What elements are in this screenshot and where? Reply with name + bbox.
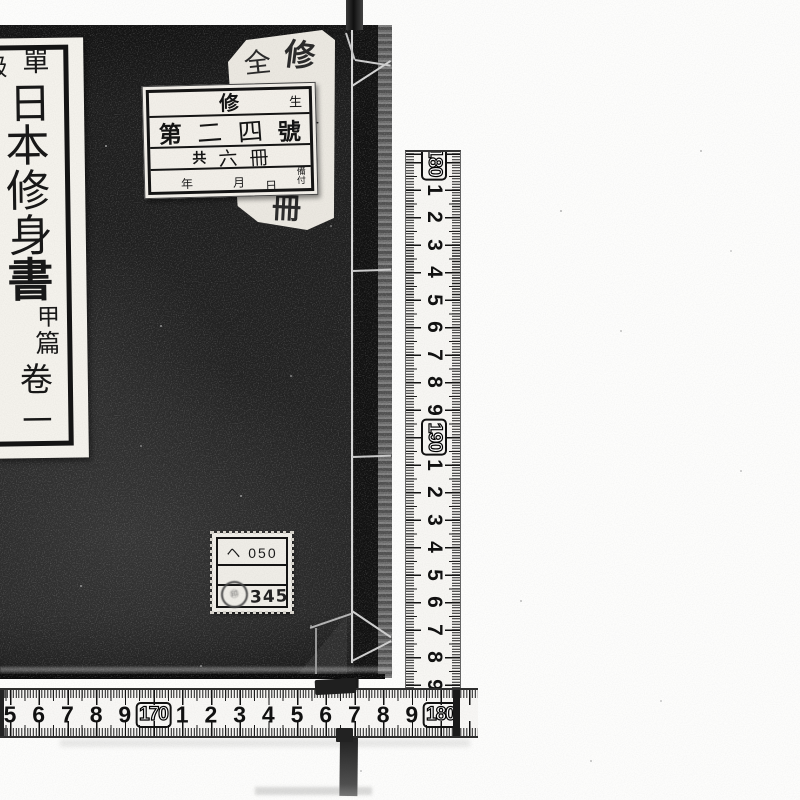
ruler-number: 2 bbox=[204, 702, 217, 729]
horizontal-ruler-numbers: 56789170123456789180 bbox=[0, 690, 478, 736]
ruler-number: 7 bbox=[422, 349, 446, 361]
register-no-prefix: 第 bbox=[158, 115, 182, 150]
register-subject: 修 bbox=[219, 91, 240, 115]
edition-char: 篇 bbox=[35, 331, 60, 356]
ruler-number: 8 bbox=[422, 376, 446, 388]
register-label-frame: 修 生 第 二 四 號 共 六 冊 年 月 日 備 付 bbox=[146, 86, 315, 195]
volumes-count: 六 bbox=[218, 143, 239, 171]
title-char: 本 bbox=[5, 125, 50, 170]
title-char: 級 bbox=[0, 55, 8, 79]
cord-over-ruler-top bbox=[315, 678, 357, 695]
ruler-number: 9 bbox=[118, 702, 131, 729]
ruler-number: 190 bbox=[421, 419, 447, 456]
binding-thread-vertical bbox=[351, 30, 353, 663]
ruler-number: 6 bbox=[422, 321, 446, 333]
cord-over-ruler-bottom bbox=[336, 728, 353, 742]
ruler-number: 8 bbox=[422, 651, 446, 663]
ruler-number: 5 bbox=[422, 294, 446, 306]
archival-scan-book-cover: 級 單 日 本 修 身 書 甲 篇 卷 一 全 修 六 冊 修 生 第 二 四 … bbox=[0, 0, 800, 800]
ruler-number: 3 bbox=[422, 239, 446, 251]
ruler-number: 7 bbox=[348, 702, 361, 729]
ruler-number: 1 bbox=[422, 459, 446, 471]
scan-edge-sliver bbox=[0, 690, 4, 736]
handwritten-char: 全 bbox=[243, 49, 273, 79]
book-spine bbox=[354, 25, 378, 678]
title-char: 修 bbox=[6, 170, 51, 215]
call-label-frame: ヘ 050 ㊞ 345 bbox=[216, 537, 288, 608]
binding-cord-top bbox=[346, 0, 363, 30]
register-grade: 生 bbox=[289, 91, 302, 110]
ruler-number: 5 bbox=[4, 702, 17, 729]
volume-char: 一 bbox=[22, 407, 52, 437]
ruler-shadow bbox=[60, 739, 470, 747]
book-page-edges bbox=[378, 25, 392, 678]
ruler-number: 3 bbox=[422, 514, 446, 526]
handwritten-char: 修 bbox=[282, 39, 317, 74]
cover-bottom-scuff bbox=[0, 667, 392, 672]
volumes-suffix: 冊 bbox=[249, 142, 270, 170]
ruler-number: 6 bbox=[319, 702, 332, 729]
ruler-number: 1 bbox=[422, 184, 446, 196]
ruler-number: 2 bbox=[422, 211, 446, 223]
volumes-prefix: 共 bbox=[192, 148, 206, 168]
ruler-number: 1 bbox=[176, 702, 189, 729]
date-day: 日 bbox=[265, 177, 277, 194]
date-month: 月 bbox=[233, 174, 245, 191]
ruler-number: 4 bbox=[422, 541, 446, 553]
vertical-ruler-numbers: 180123456789190123456789 bbox=[406, 152, 460, 738]
ruler-number: 5 bbox=[422, 569, 446, 581]
dust-specks bbox=[105, 145, 107, 147]
date-note-char: 付 bbox=[297, 177, 306, 186]
call-number-label: ヘ 050 ㊞ 345 bbox=[212, 533, 292, 612]
book-bottom-shadow bbox=[0, 674, 385, 679]
vertical-ruler: 180123456789190123456789 bbox=[405, 150, 461, 738]
ruler-number: 6 bbox=[422, 596, 446, 608]
title-char: 單 bbox=[22, 49, 49, 76]
ruler-number: 9 bbox=[405, 702, 418, 729]
title-char: 書 bbox=[7, 257, 54, 304]
date-note: 備 付 bbox=[297, 168, 306, 186]
spine-title-label: 級 單 日 本 修 身 書 甲 篇 卷 一 bbox=[0, 37, 89, 458]
call-number-text: ヘ 050 bbox=[218, 543, 286, 563]
ruler-number: 5 bbox=[291, 702, 304, 729]
ruler-number: 3 bbox=[233, 702, 246, 729]
ruler-number: 170 bbox=[135, 702, 172, 728]
ruler-number: 4 bbox=[422, 266, 446, 278]
ruler-number: 8 bbox=[90, 702, 103, 729]
ruler-number: 8 bbox=[377, 702, 390, 729]
ruler-number: 6 bbox=[32, 702, 45, 729]
ruler-end-cap bbox=[453, 690, 460, 736]
ruler-number: 180 bbox=[421, 150, 447, 180]
title-char: 日 bbox=[9, 83, 52, 126]
register-row-date: 年 月 日 備 付 bbox=[151, 167, 311, 192]
ruler-number: 7 bbox=[422, 624, 446, 636]
horizontal-ruler: 56789170123456789180 bbox=[0, 688, 478, 738]
register-no-suffix: 號 bbox=[277, 112, 301, 147]
ruler-number: 7 bbox=[61, 702, 74, 729]
corner-stitch-bottom-4 bbox=[315, 628, 317, 674]
date-year: 年 bbox=[181, 175, 193, 192]
call-number-digits: 345 bbox=[250, 586, 289, 607]
ruler-number: 9 bbox=[422, 404, 446, 416]
handwritten-char: 冊 bbox=[271, 193, 301, 223]
register-label: 修 生 第 二 四 號 共 六 冊 年 月 日 備 付 bbox=[142, 82, 319, 199]
call-label-divider bbox=[218, 564, 286, 566]
background-specks bbox=[560, 210, 562, 212]
ruler-number: 4 bbox=[262, 702, 275, 729]
volume-char: 卷 bbox=[20, 363, 53, 396]
edition-char: 甲 bbox=[37, 307, 60, 330]
ruler-number: 2 bbox=[422, 486, 446, 498]
